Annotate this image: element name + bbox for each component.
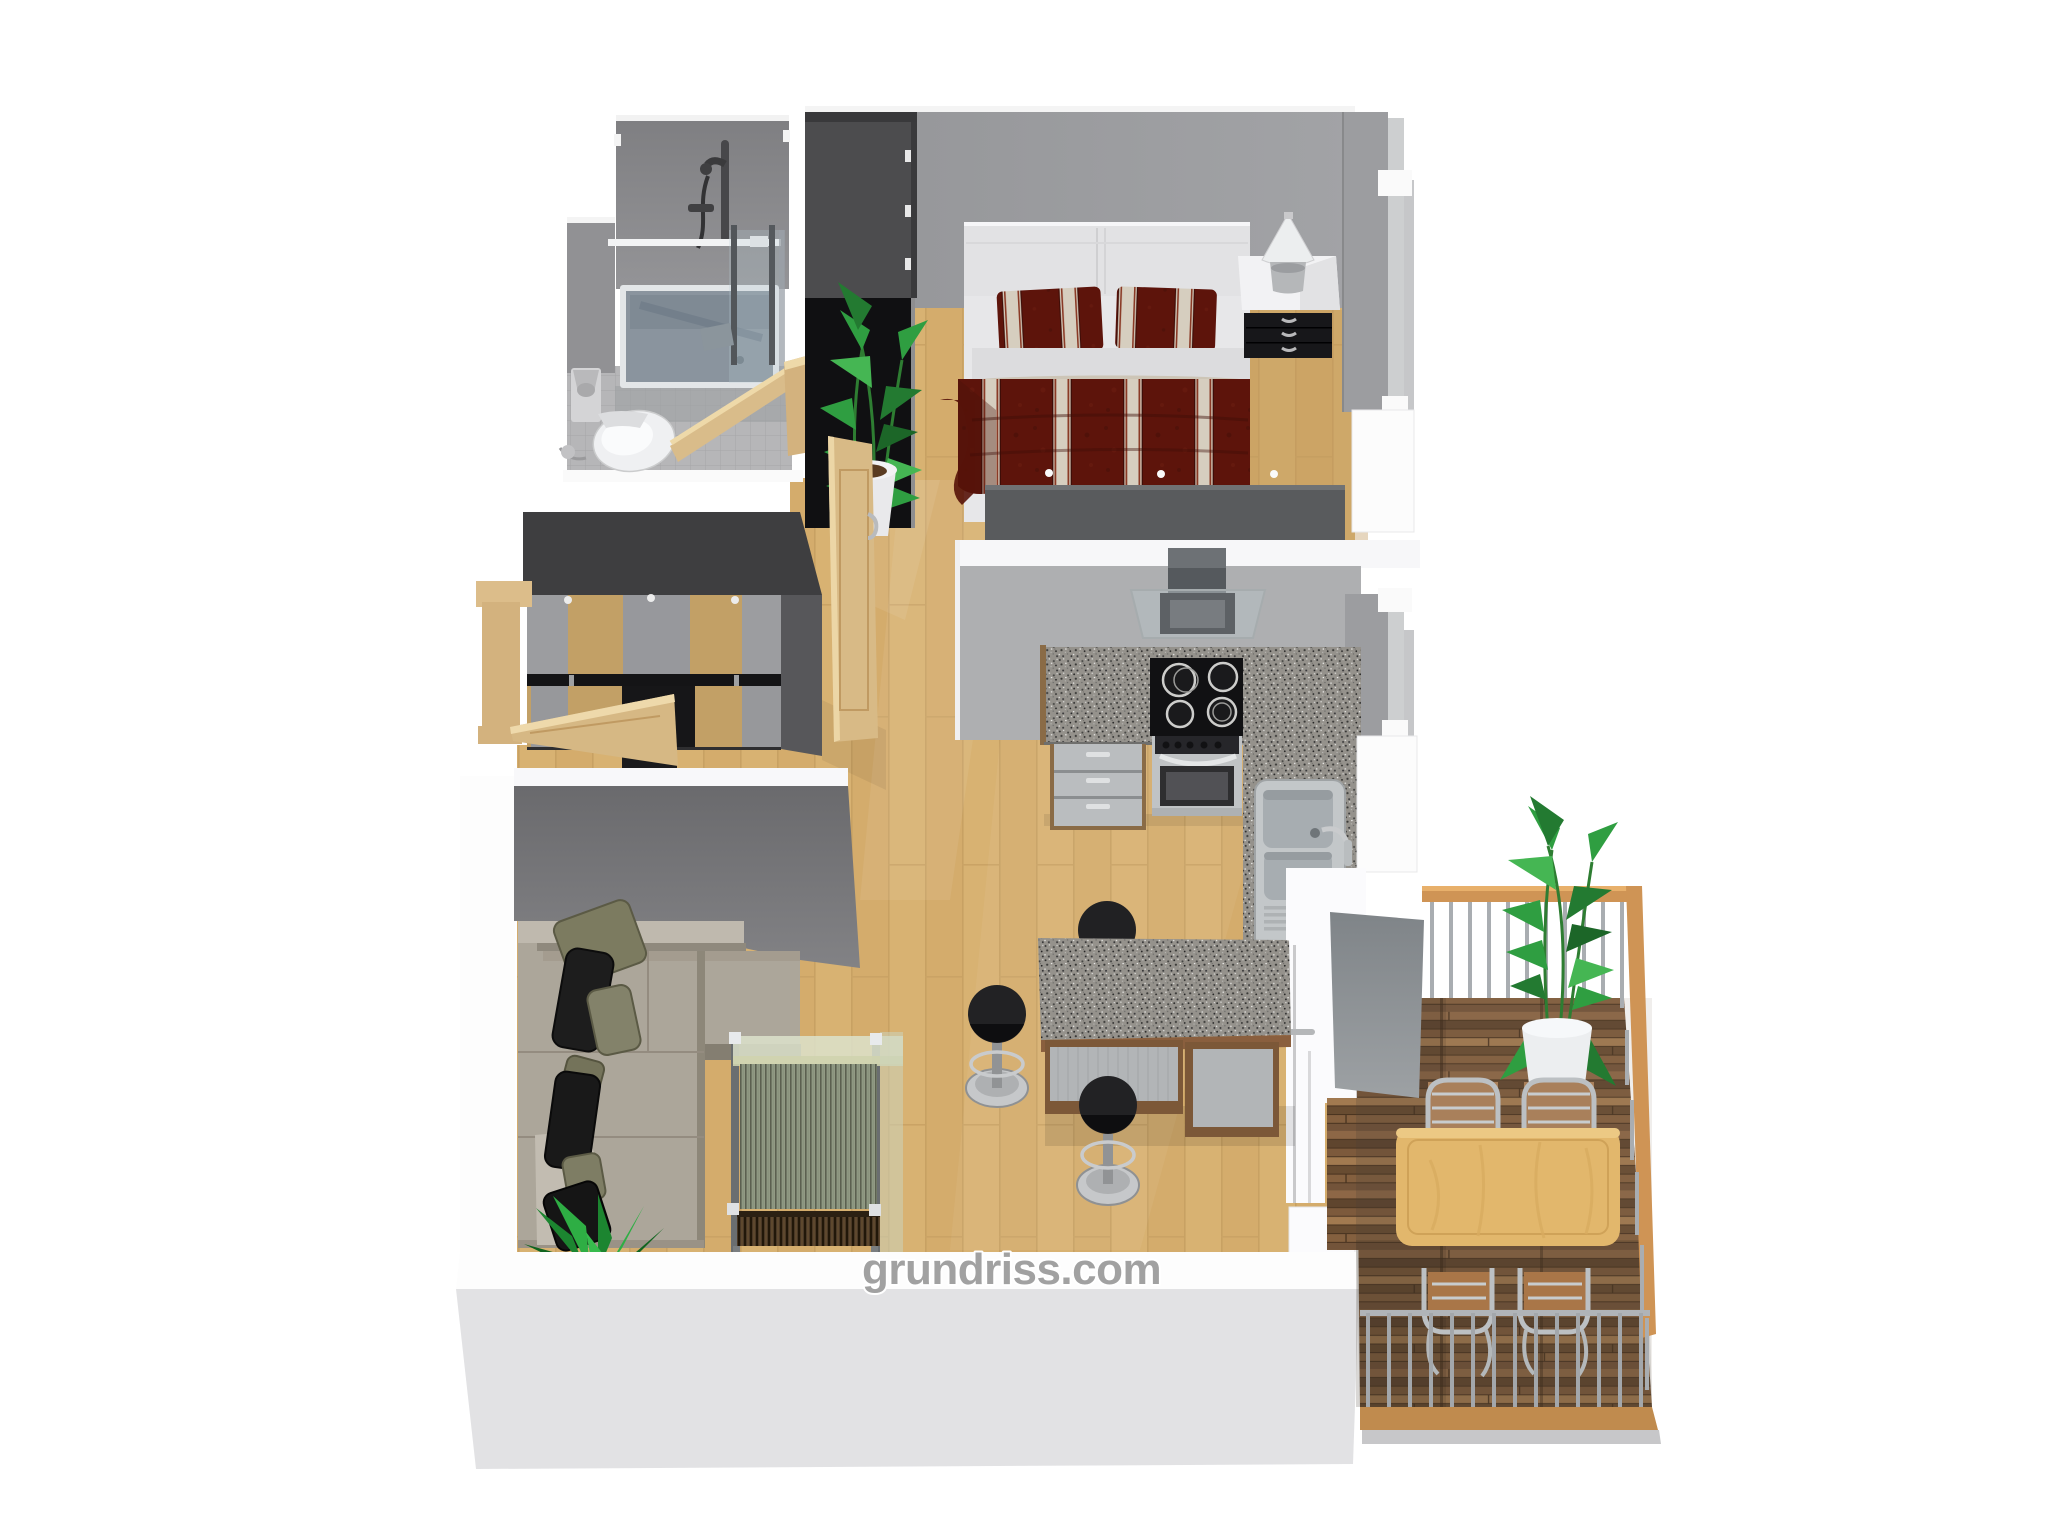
- svg-text:grundriss.com: grundriss.com: [862, 1245, 1161, 1294]
